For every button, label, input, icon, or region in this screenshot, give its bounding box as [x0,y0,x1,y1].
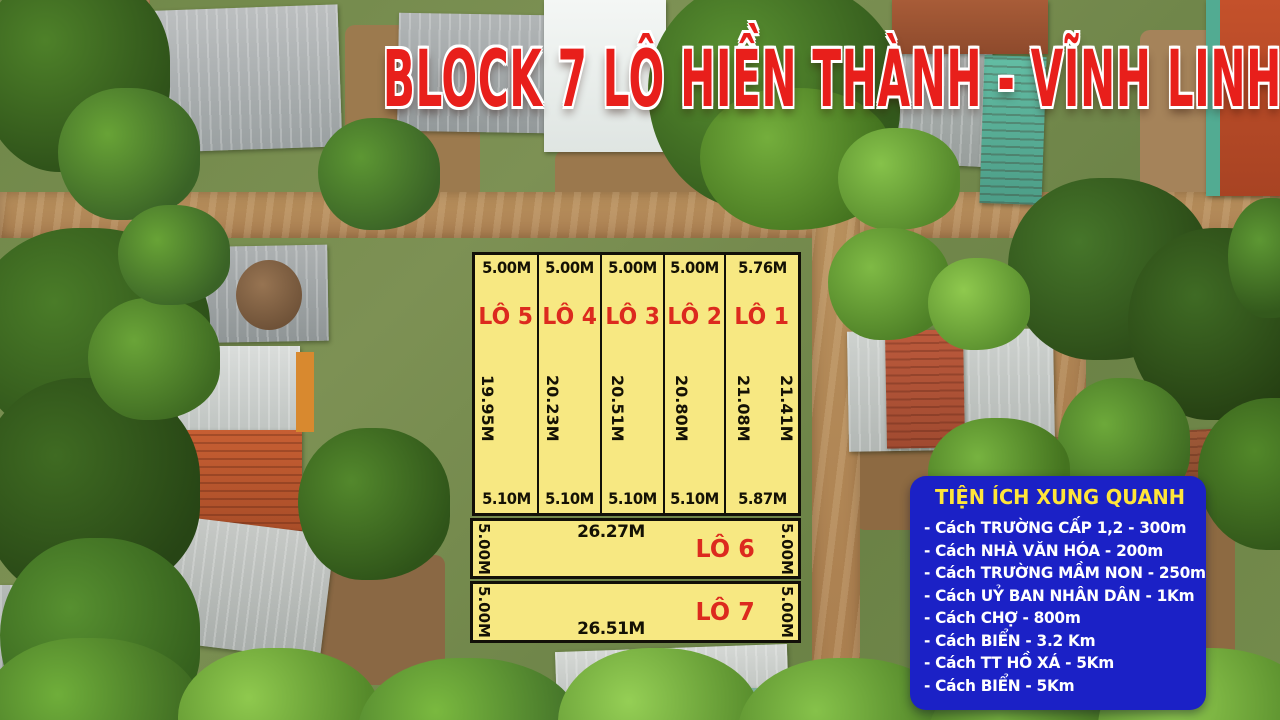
amenities-title: TIỆN ÍCH XUNG QUANH [928,485,1192,509]
plot-lo6-left-side: 5.00M [475,523,493,575]
banner-title: BLOCK 7 LÔ HIỀN THÀNH - VĨNH LINH [0,34,1280,126]
plot-lo2-bottom-width: 5.10M [670,489,719,508]
amenity-item: - Cách NHÀ VĂN HÓA - 200m [924,540,1185,563]
plot-lo5-bottom-width: 5.10M [482,489,531,508]
plot-lo1-bottom-width: 5.87M [738,489,787,508]
amenity-item: - Cách TT HỒ XÁ - 5Km [924,652,1185,675]
side-length-lo4: 20.23M [543,375,562,442]
plot-lo1-label: LÔ 1 [735,304,790,330]
plot-lo7-right-side: 5.00M [778,586,796,638]
tree-canopy [838,128,960,230]
plot-lo4-top-width: 5.00M [545,258,594,277]
plot-lo6-label: LÔ 6 [695,533,754,562]
plot-lo4-label: LÔ 4 [542,304,597,330]
amenity-item: - Cách CHỢ - 800m [924,607,1185,630]
plot-lo5-label: LÔ 5 [479,304,534,330]
amenity-item: - Cách UỶ BAN NHÂN DÂN - 1Km [924,585,1185,608]
tree-canopy [928,258,1030,350]
amenity-item: - Cách BIỂN - 3.2 Km [924,630,1185,653]
tree-canopy [88,298,220,420]
plot-lo2-label: LÔ 2 [667,304,722,330]
side-length-lo1-left: 21.08M [734,375,753,442]
plot-lo5-top-width: 5.00M [482,258,531,277]
plot-lo6: 26.27M LÔ 6 5.00M 5.00M [470,518,801,579]
plot-lo3-label: LÔ 3 [605,304,660,330]
plot-lo3-top-width: 5.00M [608,258,657,277]
amenity-item: - Cách TRƯỜNG CẤP 1,2 - 300m [924,517,1185,540]
side-length-lo5: 19.95M [478,375,497,442]
plot-lo1-top-width: 5.76M [738,258,787,277]
plot-lo7: LÔ 7 26.51M 5.00M 5.00M [470,581,801,643]
amenity-item: - Cách TRƯỜNG MẦM NON - 250m [924,562,1185,585]
amenities-list: - Cách TRƯỜNG CẤP 1,2 - 300m - Cách NHÀ … [924,517,1196,697]
side-length-lo3: 20.51M [608,375,627,442]
tree-canopy [318,118,440,230]
plot-lo7-left-side: 5.00M [475,586,493,638]
real-estate-aerial-ad: BLOCK 7 LÔ HIỀN THÀNH - VĨNH LINH 5.00M … [0,0,1280,720]
tree-canopy [298,428,450,580]
plot-lo2-top-width: 5.00M [670,258,719,277]
banner-title-text: BLOCK 7 LÔ HIỀN THÀNH - VĨNH LINH [383,34,1280,126]
plot-diagram: 5.00M LÔ 5 5.10M 5.00M LÔ 4 5.10M 5.00M … [470,250,804,646]
tree-canopy [118,205,230,305]
plot-lo6-right-side: 5.00M [778,523,796,575]
plot-lo7-bottom-width: 26.51M [481,619,741,639]
plot-lo3-bottom-width: 5.10M [608,489,657,508]
plot-lo4-bottom-width: 5.10M [545,489,594,508]
haystack-dome [236,260,302,330]
plot-block-lots-1-5: 5.00M LÔ 5 5.10M 5.00M LÔ 4 5.10M 5.00M … [472,252,801,516]
house-roof-orange-tile [186,430,302,532]
side-length-lo2: 20.80M [672,375,691,442]
amenity-item: - Cách BIỂN - 5Km [924,675,1185,698]
side-length-lo1-right: 21.41M [777,375,796,442]
amenities-panel: TIỆN ÍCH XUNG QUANH - Cách TRƯỜNG CẤP 1,… [910,476,1206,710]
wall-orange [296,352,314,432]
